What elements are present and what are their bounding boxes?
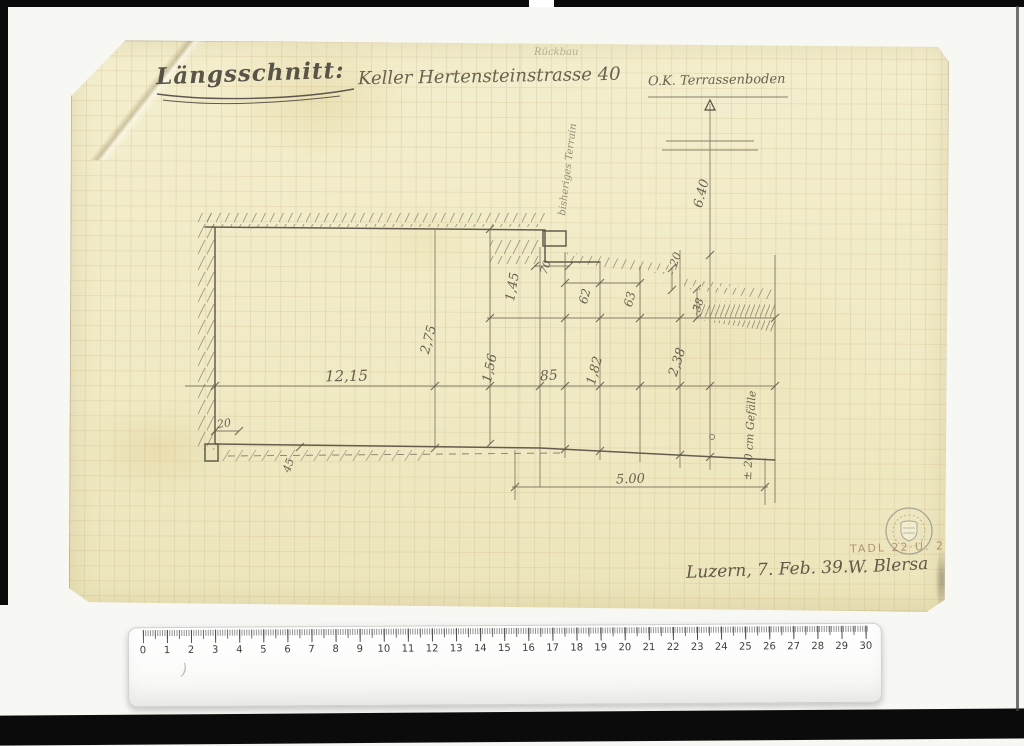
archive-code: TADL 22 U. 2 [850,540,945,554]
drawing-title: Längsschnitt: [156,59,345,89]
scan-border-right [1016,6,1019,711]
scanned-drawing-page: { "drawing": { "title": "Längsschnitt:",… [0,0,1024,732]
ruler-number: 0 [140,645,146,656]
dim-step-62: 62 [577,287,593,305]
ruler-number: 11 [402,644,415,655]
ruler-number: 6 [284,644,290,655]
ruler-number: 13 [450,643,463,654]
ruler-number: 4 [236,645,242,656]
drawing-subtitle: Keller Hertensteinstrasse 40 [358,66,621,89]
ruler-numbers: 0123456789101112131415161718192021222324… [143,641,868,659]
dim-seg-85: 85 [540,368,559,383]
ruler-number: 18 [570,643,583,654]
ruler-number: 21 [643,642,656,653]
ruler-number: 29 [835,641,848,652]
ruler-number: 7 [308,644,314,655]
ruler-number: 30 [859,641,872,652]
ruler-number: 19 [594,642,607,653]
ruler-number: 22 [667,642,680,653]
ruler-number: 15 [498,643,511,654]
ruler-number: 2 [188,645,194,656]
dim-room-width: 12,15 [325,369,368,385]
ruler-number: 9 [357,644,363,655]
corner-crease [71,40,222,161]
ruler-number: 12 [426,643,439,654]
faint-note: Rückbau [534,48,578,58]
vertical-fold [517,42,522,610]
dim-step-63: 63 [622,290,638,308]
ruler-number: 17 [546,643,559,654]
ruler-number: 24 [715,642,728,653]
edge-smudge [935,549,949,611]
scan-border-top [0,0,1024,7]
ruler-number: 28 [811,641,824,652]
scan-border-gap [529,0,554,7]
ruler-number: 23 [691,642,704,653]
ruler-number: 27 [787,641,800,652]
ruler-number: 16 [522,643,535,654]
ruler-mark: ) [179,659,190,679]
ruler-number: 25 [739,641,752,652]
ruler-number: 3 [212,645,218,656]
ruler-number: 20 [618,642,631,653]
dim-span-500: 5.00 [616,472,645,486]
cm-ruler: 0123456789101112131415161718192021222324… [128,623,882,708]
ruler-number: 10 [378,644,391,655]
ruler-number: 26 [763,641,776,652]
ruler-number: 8 [332,644,338,655]
signature: W. Blersa [848,556,929,577]
ruler-number: 1 [164,645,170,656]
scan-border-left [0,0,8,605]
drawing-sheet [69,40,949,612]
ruler-number: 5 [260,644,266,655]
ruler-number: 14 [474,643,487,654]
dim-base-20: 20 [216,417,231,430]
datum-label: O.K. Terrassenboden [648,73,786,88]
scan-border-bottom [0,708,1024,745]
